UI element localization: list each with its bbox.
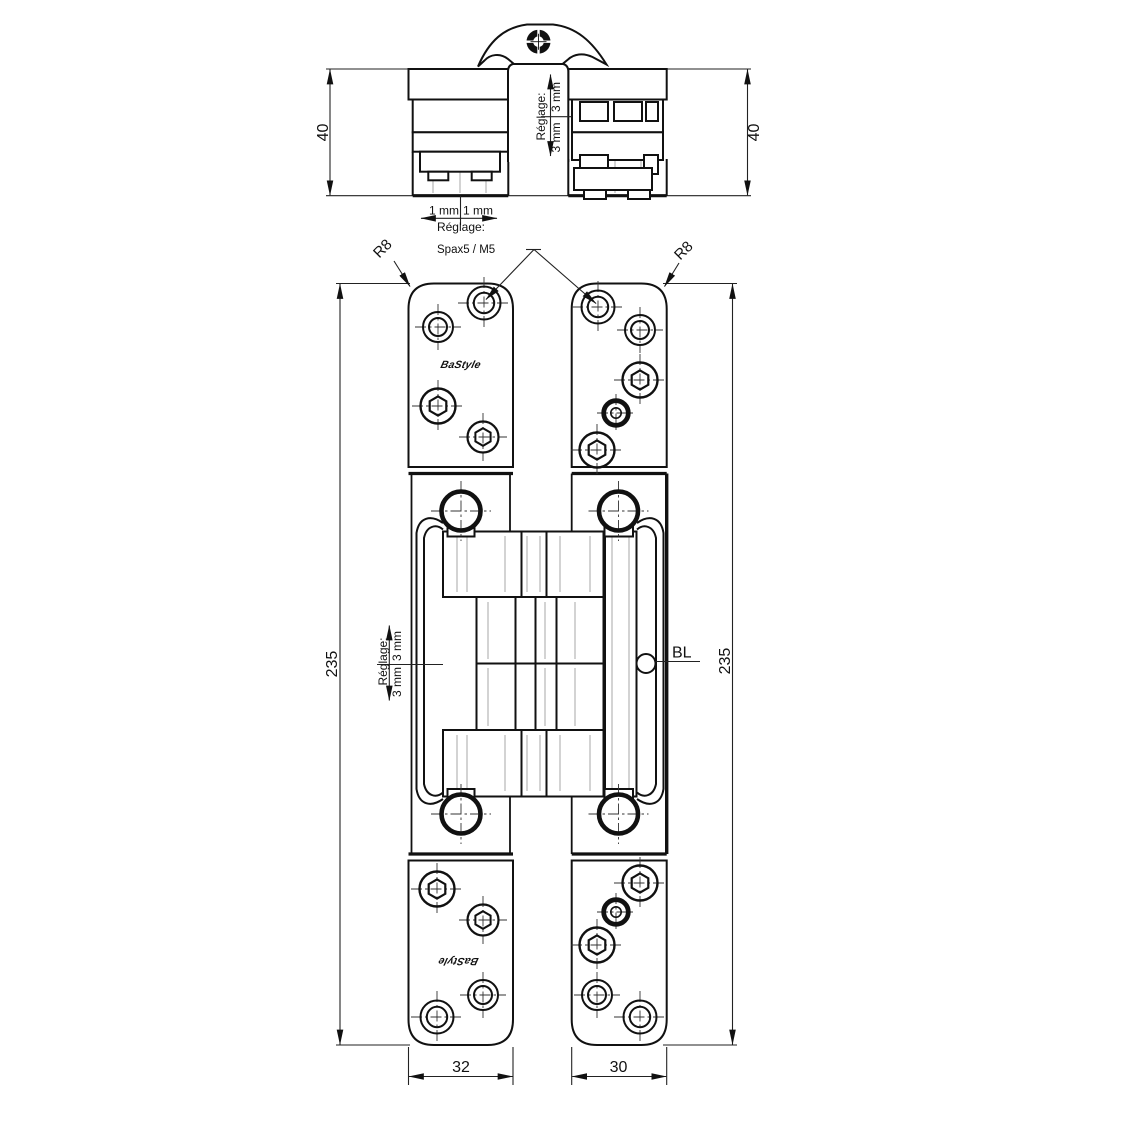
front-vertical-adjust-dim: Réglage: 3 mm 3 mm (376, 626, 443, 701)
dim-235-left: 235 (324, 284, 341, 1045)
dim-40-left-text: 40 (315, 124, 332, 142)
hinge-technical-drawing: 40 40 Réglage: 3 mm 3 mm 1 mm 1 mm Régla… (0, 0, 1122, 1122)
dim-235-right: 235 (717, 284, 734, 1045)
reglage-label-1mm: Réglage: (437, 220, 485, 234)
technical-drawing-page: 40 40 Réglage: 3 mm 3 mm 1 mm 1 mm Régla… (0, 0, 1122, 1122)
front-view: 235 235 (324, 236, 737, 1085)
top-view: 40 40 Réglage: 3 mm 3 mm 1 mm 1 mm Régla… (315, 25, 763, 235)
mounting-plate-bottom-right (571, 857, 667, 1045)
reglage-label-top-view: Réglage: (534, 92, 548, 140)
adjust-3mm-lower-top-view: 3 mm (549, 122, 563, 152)
screw-spec-text: Spax5 / M5 (437, 244, 495, 256)
dim-30: 30 (572, 1047, 667, 1085)
hinge-mechanism (431, 481, 649, 844)
adjust-3mm-lower-front: 3 mm (390, 667, 404, 697)
brand-logo-bottom: BaStyle (437, 955, 480, 967)
dim-32-text: 32 (452, 1059, 470, 1076)
adjust-1mm-left: 1 mm (429, 204, 459, 218)
dim-32: 32 (409, 1047, 514, 1085)
reglage-label-front: Réglage: (376, 637, 390, 685)
adjust-3mm-upper-top-view: 3 mm (549, 82, 563, 112)
dim-235-left-text: 235 (324, 651, 341, 678)
adjust-1mm-right: 1 mm (463, 204, 493, 218)
adjust-3mm-upper-front: 3 mm (390, 631, 404, 661)
top-view-horizontal-adjust-dim: 1 mm 1 mm Réglage: (421, 196, 497, 234)
axis-label-text: BL (672, 645, 692, 662)
brand-logo-top: BaStyle (439, 359, 482, 371)
mounting-plate-bottom-left: BaStyle (409, 861, 514, 1046)
mounting-plate-top-left: BaStyle (409, 277, 514, 467)
dim-40-right: 40 (746, 70, 763, 196)
top-view-right-body (568, 69, 666, 199)
dim-40-right-text: 40 (746, 124, 763, 142)
pivot-arm (478, 25, 607, 67)
dim-30-text: 30 (610, 1059, 628, 1076)
mounting-plate-top-right (571, 281, 667, 476)
radius-callout-right: R8 (665, 238, 697, 286)
radius-right-text: R8 (671, 238, 697, 264)
top-view-left-body (409, 69, 511, 196)
axis-hole (637, 654, 656, 673)
radius-left-text: R8 (370, 236, 396, 262)
dim-40-left: 40 (315, 70, 332, 196)
radius-callout-left: R8 (370, 236, 410, 286)
dim-235-right-text: 235 (717, 648, 734, 675)
